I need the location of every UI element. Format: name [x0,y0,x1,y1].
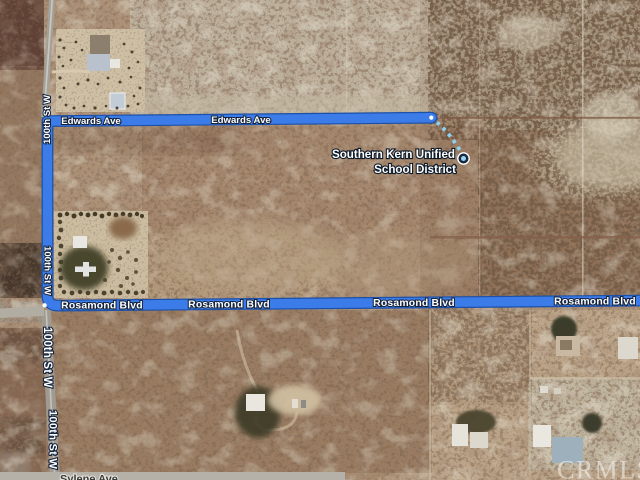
svg-text:100th St W: 100th St W [41,327,53,388]
svg-text:Edwards Ave: Edwards Ave [211,115,271,126]
svg-text:School District: School District [374,163,456,176]
svg-text:Rosamond Blvd: Rosamond Blvd [61,300,143,311]
svg-text:100th St W: 100th St W [42,94,53,144]
svg-text:Rosamond Blvd: Rosamond Blvd [554,297,636,308]
svg-text:Edwards Ave: Edwards Ave [61,116,121,127]
svg-text:100th St W: 100th St W [41,246,52,296]
svg-text:Southern Kern Unified: Southern Kern Unified [332,148,455,161]
svg-text:Rosamond Blvd: Rosamond Blvd [188,299,270,310]
svg-text:100th St W: 100th St W [47,410,59,469]
svg-text:Rosamond Blvd: Rosamond Blvd [373,298,455,309]
svg-text:Sylene Ave: Sylene Ave [60,474,118,480]
svg-text:CRMLS: CRMLS [557,456,640,480]
